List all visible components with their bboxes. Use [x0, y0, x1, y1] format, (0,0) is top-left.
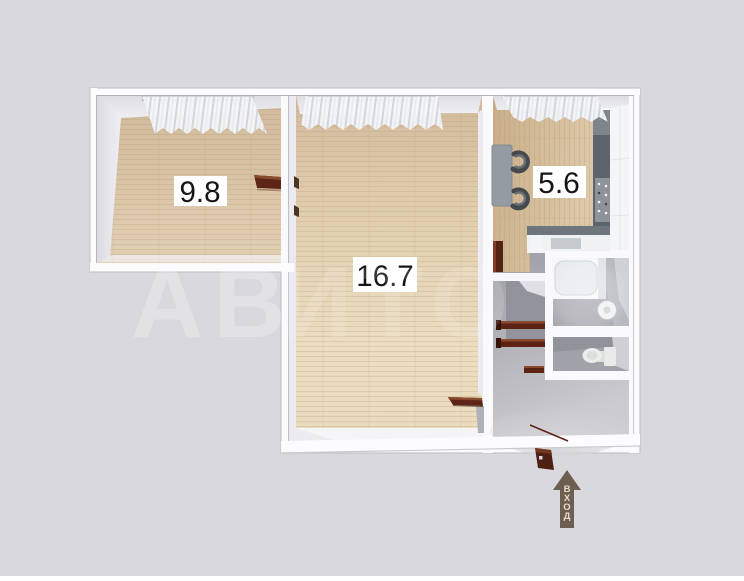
- svg-text:9.8: 9.8: [179, 176, 220, 209]
- svg-text:АВ: АВ: [131, 247, 295, 359]
- svg-text:ИТО: ИТО: [280, 247, 518, 359]
- svg-text:Д: Д: [564, 511, 571, 522]
- svg-text:5.6: 5.6: [538, 167, 580, 200]
